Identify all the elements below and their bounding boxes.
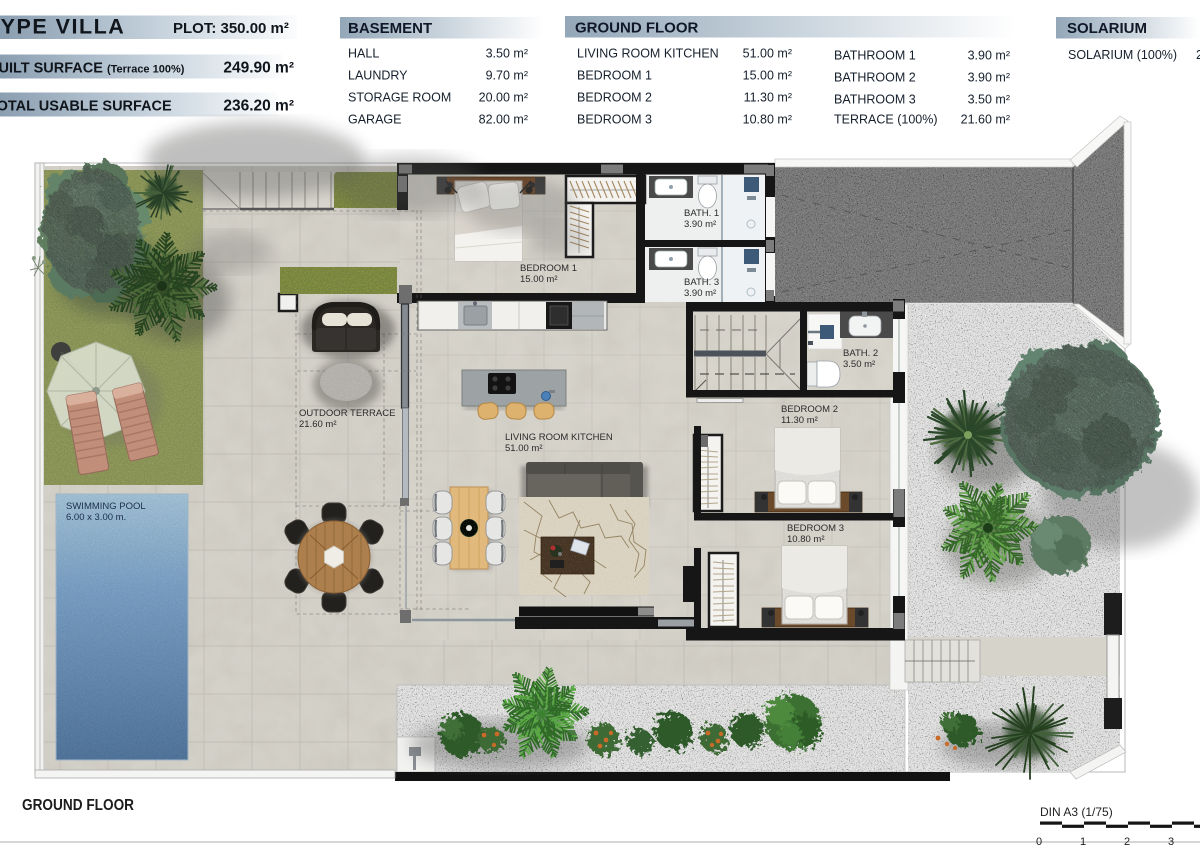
svg-text:11.30 m²: 11.30 m²	[781, 415, 818, 426]
svg-text:LIVING ROOM KITCHEN: LIVING ROOM KITCHEN	[577, 47, 719, 61]
svg-text:51.00 m²: 51.00 m²	[743, 47, 792, 61]
svg-text:BATHROOM 2: BATHROOM 2	[834, 71, 916, 85]
svg-text:10.80 m²: 10.80 m²	[787, 534, 825, 545]
svg-text:BATH. 2: BATH. 2	[843, 348, 878, 359]
svg-text:3.90 m²: 3.90 m²	[684, 219, 716, 230]
svg-text:BATH. 1: BATH. 1	[684, 208, 719, 219]
svg-text:TYPE VILLA: TYPE VILLA	[0, 15, 125, 39]
svg-text:51.00 m²: 51.00 m²	[505, 443, 543, 454]
svg-text:15.00 m²: 15.00 m²	[743, 69, 792, 83]
svg-text:LIVING ROOM KITCHEN: LIVING ROOM KITCHEN	[505, 432, 613, 443]
svg-text:11.30 m²: 11.30 m²	[744, 91, 792, 105]
svg-text:3.50 m²: 3.50 m²	[843, 359, 875, 370]
svg-text:2: 2	[1124, 836, 1130, 848]
svg-text:BEDROOM 2: BEDROOM 2	[781, 404, 838, 415]
svg-text:SOLARIUM (100%): SOLARIUM (100%)	[1068, 48, 1177, 62]
svg-text:TERRACE (100%): TERRACE (100%)	[834, 113, 938, 127]
svg-text:9.70 m²: 9.70 m²	[486, 69, 528, 83]
svg-text:BEDROOM 3: BEDROOM 3	[787, 523, 844, 534]
svg-text:BASEMENT: BASEMENT	[348, 20, 432, 37]
svg-text:BATHROOM 3: BATHROOM 3	[834, 93, 916, 107]
svg-text:BATH. 3: BATH. 3	[684, 277, 719, 288]
svg-text:3: 3	[1168, 836, 1174, 848]
svg-text:GROUND FLOOR: GROUND FLOOR	[575, 20, 698, 37]
svg-text:1: 1	[1080, 836, 1086, 848]
svg-text:6.00 x 3.00 m.: 6.00 x 3.00 m.	[66, 512, 126, 523]
svg-text:21: 21	[1196, 48, 1200, 62]
svg-text:SWIMMING POOL: SWIMMING POOL	[66, 501, 146, 512]
svg-text:3.50 m²: 3.50 m²	[486, 47, 528, 61]
svg-text:BEDROOM 1: BEDROOM 1	[577, 69, 652, 83]
svg-text:BATHROOM 1: BATHROOM 1	[834, 49, 916, 63]
svg-text:LAUNDRY: LAUNDRY	[348, 69, 408, 83]
svg-text:STORAGE ROOM: STORAGE ROOM	[348, 91, 451, 105]
svg-text:BEDROOM 1: BEDROOM 1	[520, 263, 577, 274]
svg-text:BEDROOM 2: BEDROOM 2	[577, 91, 652, 105]
svg-text:236.20 m²: 236.20 m²	[223, 98, 294, 115]
svg-text:PLOT: 350.00 m²: PLOT: 350.00 m²	[173, 20, 289, 37]
svg-text:249.90 m²: 249.90 m²	[223, 60, 294, 77]
svg-text:10.80 m²: 10.80 m²	[743, 113, 792, 127]
svg-text:BEDROOM 3: BEDROOM 3	[577, 113, 652, 127]
svg-text:DIN A3 (1/75): DIN A3 (1/75)	[1040, 805, 1113, 819]
svg-text:OUTDOOR TERRACE: OUTDOOR TERRACE	[299, 408, 395, 419]
svg-text:3.90 m²: 3.90 m²	[968, 49, 1010, 63]
svg-text:TOTAL USABLE SURFACE: TOTAL USABLE SURFACE	[0, 99, 172, 115]
svg-text:3.90 m²: 3.90 m²	[968, 71, 1010, 85]
svg-text:20.00 m²: 20.00 m²	[479, 91, 528, 105]
svg-text:3.50 m²: 3.50 m²	[968, 93, 1010, 107]
svg-text:0: 0	[1036, 836, 1042, 848]
svg-text:SOLARIUM: SOLARIUM	[1067, 20, 1147, 37]
svg-text:15.00 m²: 15.00 m²	[520, 274, 558, 285]
svg-text:82.00 m²: 82.00 m²	[479, 113, 528, 127]
svg-text:21.60 m²: 21.60 m²	[299, 419, 337, 430]
svg-text:GROUND FLOOR: GROUND FLOOR	[22, 797, 134, 814]
svg-text:3.90 m²: 3.90 m²	[684, 288, 716, 299]
svg-text:BUILT SURFACE (Terrace 100%): BUILT SURFACE (Terrace 100%)	[0, 61, 185, 77]
svg-text:21.60 m²: 21.60 m²	[961, 113, 1010, 127]
svg-text:GARAGE: GARAGE	[348, 113, 402, 127]
svg-text:HALL: HALL	[348, 47, 379, 61]
